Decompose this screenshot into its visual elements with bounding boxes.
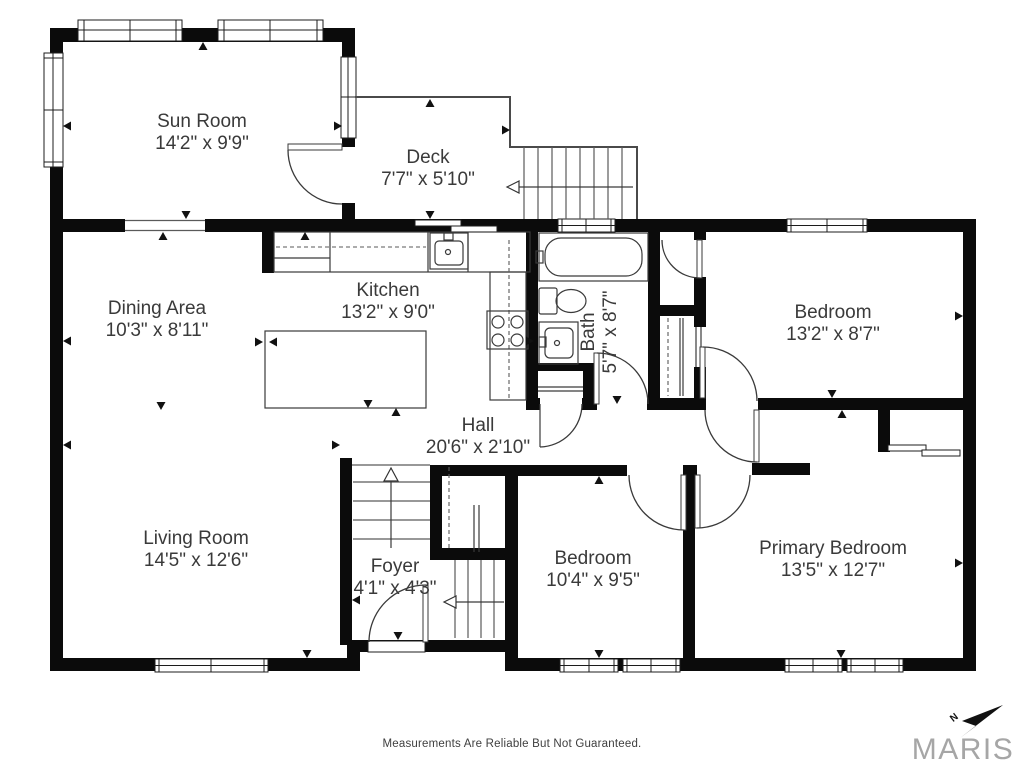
stair-direction-arrow bbox=[507, 181, 519, 193]
kitchen-counter bbox=[274, 232, 530, 272]
closet-slider-panel bbox=[922, 450, 960, 456]
label-hall: Hall bbox=[462, 415, 495, 436]
stove bbox=[487, 311, 528, 349]
hall-end-door bbox=[705, 410, 759, 462]
label-bedroom-lower: Bedroom bbox=[554, 548, 631, 569]
floor-plan-drawing: Sun Room 14'2" x 9'9" Deck 7'7" x 5'10" … bbox=[0, 0, 1024, 768]
front-door-threshold bbox=[368, 641, 425, 652]
dims-bedroom-lower: 10'4" x 9'5" bbox=[546, 570, 640, 591]
dims-bath: 5'7" x 8'7" bbox=[600, 290, 621, 373]
bath-vanity bbox=[539, 322, 578, 364]
label-bedroom-upper: Bedroom bbox=[794, 302, 871, 323]
closet-slider-panel bbox=[888, 445, 926, 451]
footer: Measurements Are Reliable But Not Guaran… bbox=[383, 705, 1015, 766]
label-deck: Deck bbox=[406, 147, 450, 168]
floor-plan-page: Sun Room 14'2" x 9'9" Deck 7'7" x 5'10" … bbox=[0, 0, 1024, 768]
disclaimer-text: Measurements Are Reliable But Not Guaran… bbox=[383, 738, 642, 750]
upper-bedroom-door bbox=[700, 347, 757, 401]
deck-outline bbox=[355, 97, 637, 219]
dims-hall: 20'6" x 2'10" bbox=[426, 437, 530, 458]
label-sun-room: Sun Room bbox=[157, 111, 247, 132]
label-bath: Bath bbox=[578, 312, 599, 351]
upper-closet-door bbox=[662, 240, 702, 278]
linen-closet-shelves bbox=[538, 387, 583, 391]
label-foyer: Foyer bbox=[371, 556, 420, 577]
primary-bedroom-door bbox=[695, 475, 750, 528]
linen-closet-door bbox=[540, 404, 582, 447]
compass-north-label: N bbox=[948, 711, 960, 724]
kitchen-island bbox=[265, 331, 426, 408]
deck-stairs bbox=[507, 147, 633, 219]
label-kitchen: Kitchen bbox=[356, 280, 419, 301]
label-primary-bedroom: Primary Bedroom bbox=[759, 538, 907, 559]
dims-dining-area: 10'3" x 8'11" bbox=[106, 320, 209, 341]
lower-bedroom-door bbox=[629, 475, 686, 530]
label-living-room: Living Room bbox=[143, 528, 249, 549]
dims-bedroom-upper: 13'2" x 8'7" bbox=[786, 324, 880, 345]
brand-logo: MARIS bbox=[912, 733, 1015, 766]
dims-sun-room: 14'2" x 9'9" bbox=[155, 133, 249, 154]
dims-deck: 7'7" x 5'10" bbox=[381, 169, 475, 190]
dims-kitchen: 13'2" x 9'0" bbox=[341, 302, 435, 323]
bathtub bbox=[536, 233, 648, 281]
toilet bbox=[539, 288, 586, 314]
sunroom-deck-door bbox=[288, 144, 342, 204]
kitchen-peninsula bbox=[490, 272, 526, 400]
dims-living-room: 14'5" x 12'6" bbox=[144, 550, 248, 571]
label-dining-area: Dining Area bbox=[108, 298, 207, 319]
stair-down-arrow bbox=[444, 596, 456, 608]
dims-primary-bedroom: 13'5" x 12'7" bbox=[781, 560, 885, 581]
stair-up-arrow bbox=[384, 468, 398, 481]
kitchen-sink bbox=[430, 233, 468, 269]
dims-foyer: 4'1" x 4'3" bbox=[353, 578, 436, 599]
